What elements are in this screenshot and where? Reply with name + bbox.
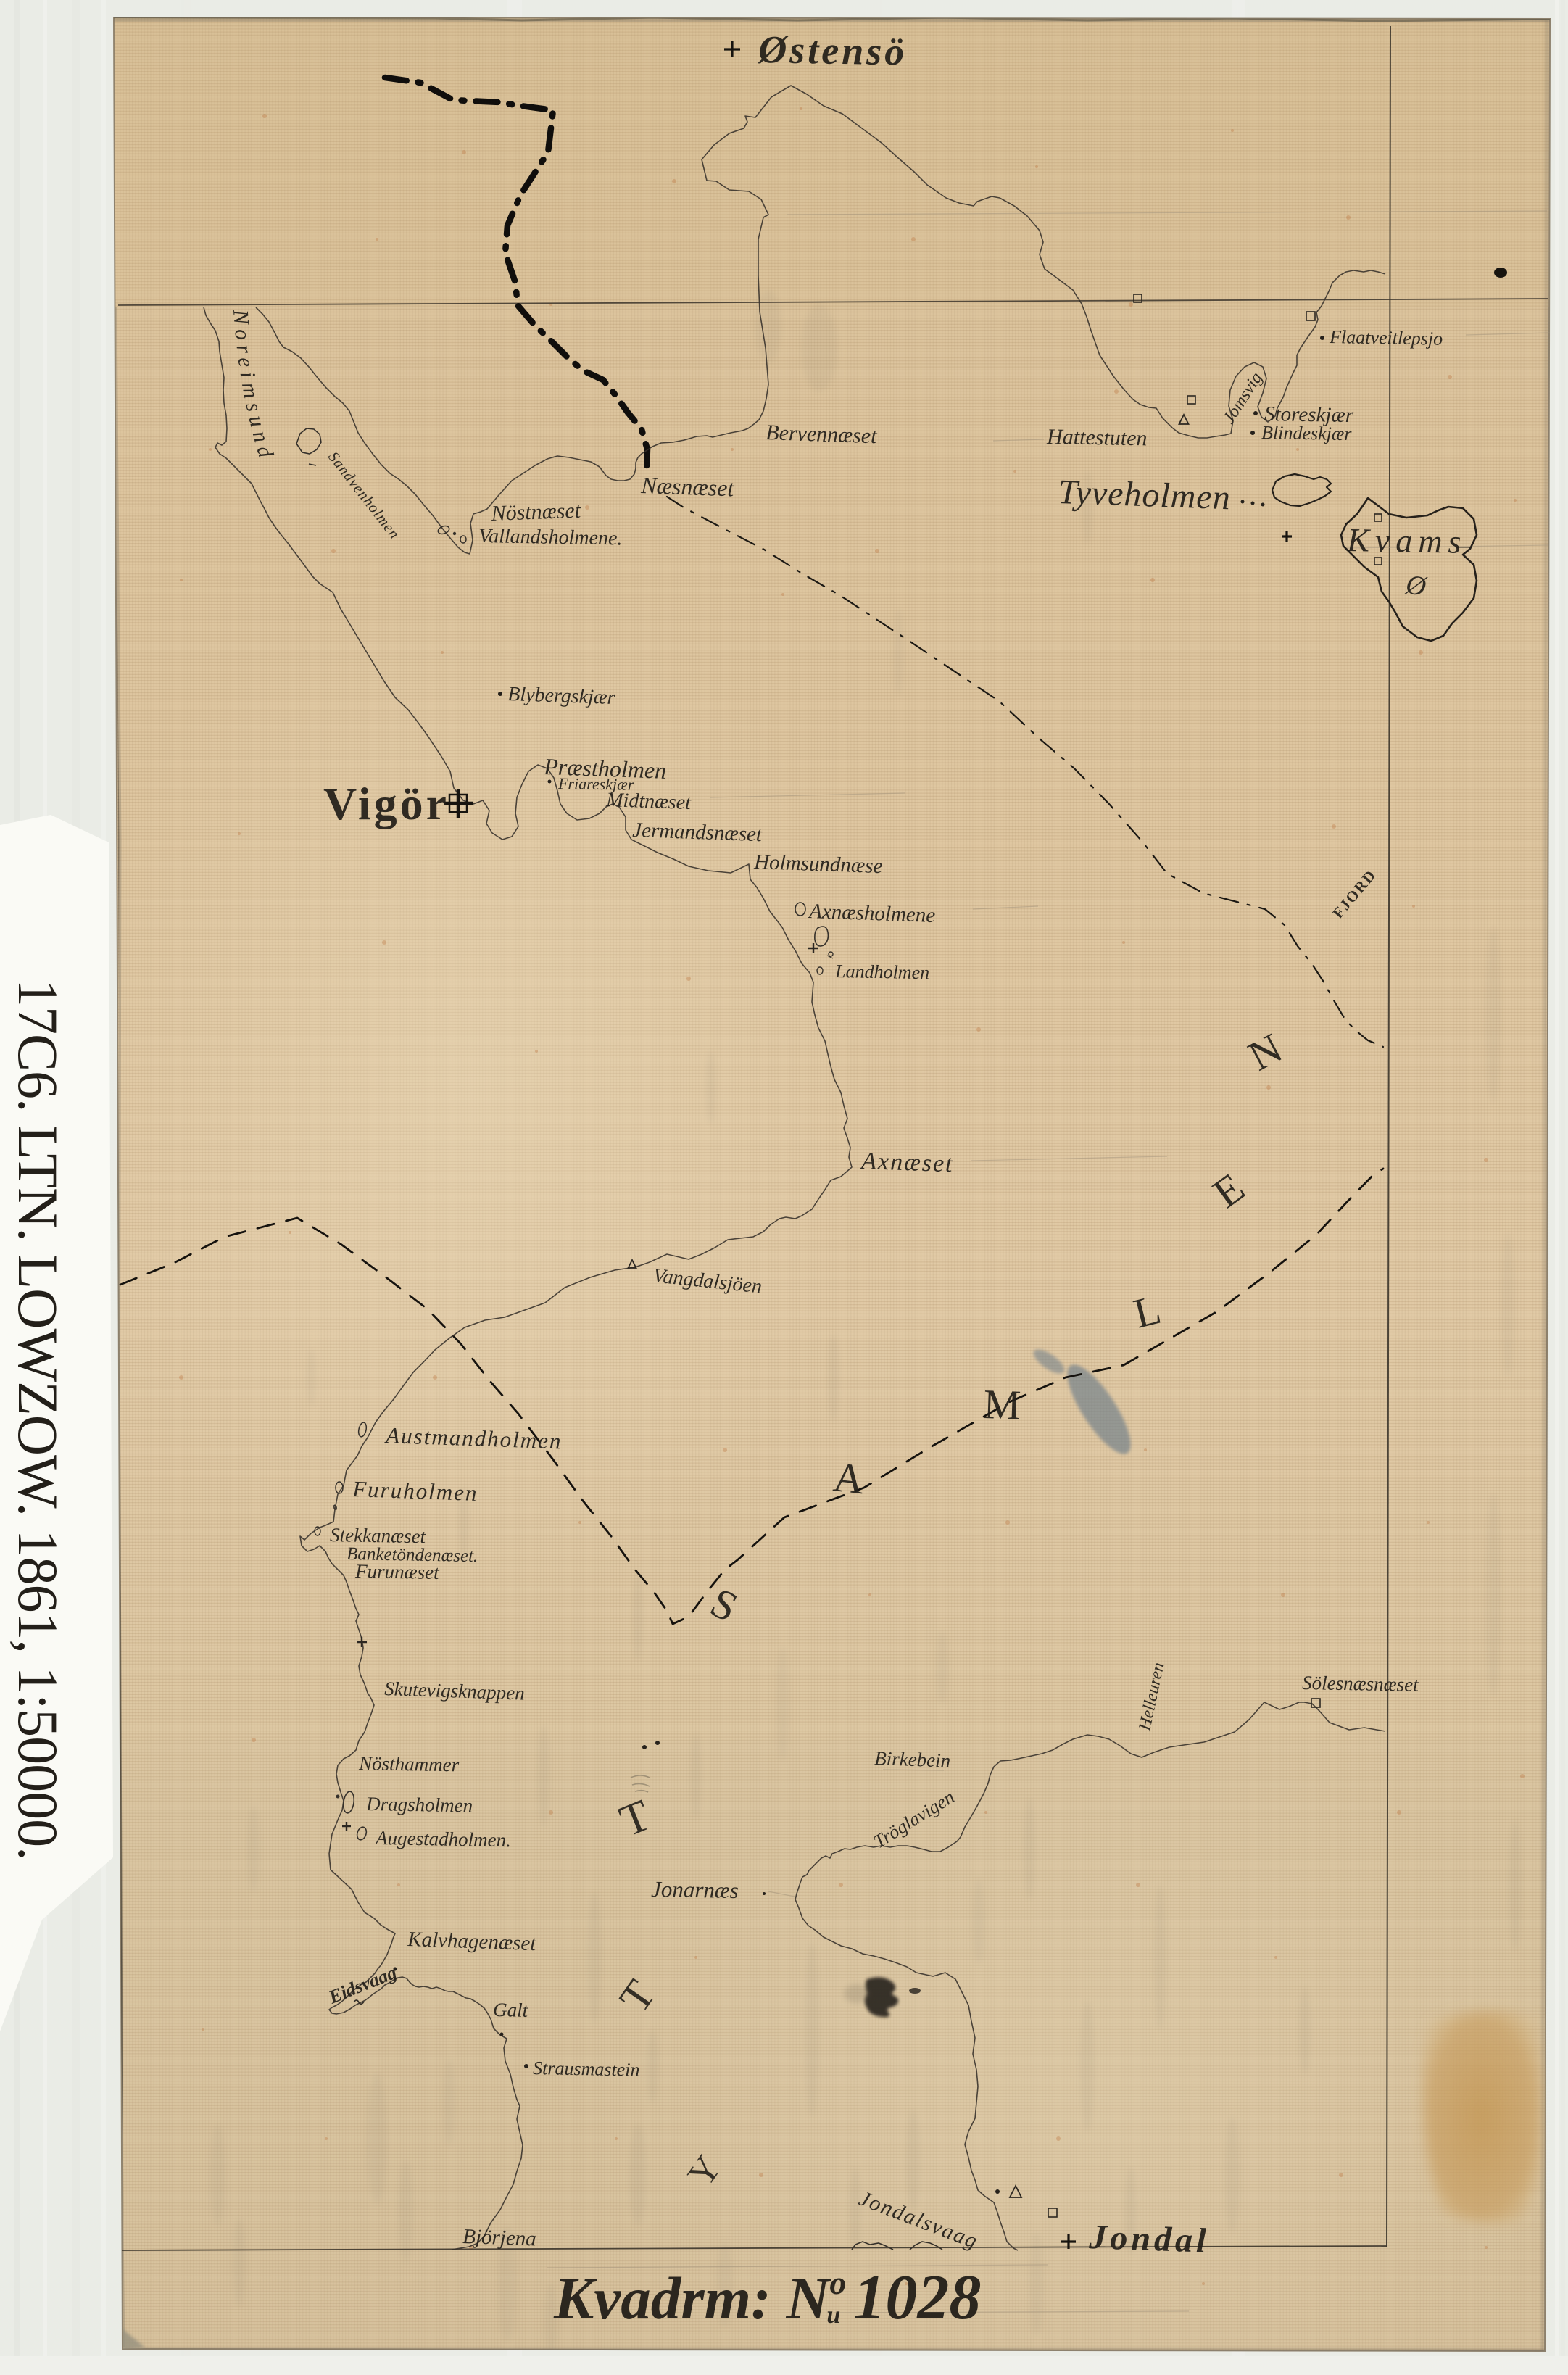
svg-text:Hattestuten: Hattestuten bbox=[1046, 425, 1148, 450]
svg-text:Sölesnæsnæset: Sölesnæsnæset bbox=[1302, 1672, 1420, 1696]
svg-text:Axnæsholmene: Axnæsholmene bbox=[808, 900, 936, 927]
svg-text:Nösthammer: Nösthammer bbox=[358, 1752, 460, 1775]
svg-text:Augestadholmen.: Augestadholmen. bbox=[374, 1827, 511, 1851]
svg-text:Birkebein: Birkebein bbox=[874, 1747, 951, 1772]
svg-text:A: A bbox=[831, 1453, 867, 1503]
svg-text:Dragsholmen: Dragsholmen bbox=[365, 1793, 473, 1817]
svg-text:Kvadrm: Nou1028: Kvadrm: Nou1028 bbox=[553, 2263, 981, 2333]
svg-text:Furuholmen: Furuholmen bbox=[352, 1476, 478, 1506]
svg-text:Næsnæset: Næsnæset bbox=[640, 472, 735, 502]
svg-text:Furunæset: Furunæset bbox=[354, 1560, 441, 1583]
svg-text:Landholmen: Landholmen bbox=[834, 961, 929, 983]
svg-text:Jermandsnæset: Jermandsnæset bbox=[632, 818, 763, 846]
svg-text:Blindeskjær: Blindeskjær bbox=[1261, 422, 1353, 444]
svg-text:Bervennæset: Bervennæset bbox=[766, 420, 878, 448]
svg-text:Björjena: Björjena bbox=[462, 2225, 537, 2251]
svg-text:Nöstnæset: Nöstnæset bbox=[490, 499, 581, 526]
svg-text:Axnæset: Axnæset bbox=[860, 1148, 955, 1177]
svg-text:Kvams: Kvams bbox=[1346, 521, 1467, 560]
svg-text:Kalvhagenæset: Kalvhagenæset bbox=[407, 1928, 537, 1955]
svg-text:Tyveholmen: Tyveholmen bbox=[1058, 473, 1232, 517]
svg-text:Stekkanæset: Stekkanæset bbox=[330, 1524, 427, 1547]
svg-text:Galt: Galt bbox=[493, 1999, 529, 2021]
svg-text:Vigör: Vigör bbox=[323, 778, 449, 829]
svg-text:Vallandsholmene.: Vallandsholmene. bbox=[478, 525, 623, 550]
svg-text:Østensö: Østensö bbox=[757, 28, 908, 74]
svg-text:—: — bbox=[1455, 536, 1470, 555]
svg-text:Jonarnæs: Jonarnæs bbox=[651, 1876, 739, 1903]
svg-text:Jondal: Jondal bbox=[1088, 2218, 1211, 2260]
svg-text:Blybergskjær: Blybergskjær bbox=[507, 683, 615, 709]
svg-text:Flaatveitlepsjo: Flaatveitlepsjo bbox=[1329, 326, 1443, 349]
svg-text:17C6. LTN. LOWZOW. 1861, 1:500: 17C6. LTN. LOWZOW. 1861, 1:50000. bbox=[7, 979, 70, 1860]
svg-text:Strausmastein: Strausmastein bbox=[533, 2057, 640, 2081]
svg-text:M: M bbox=[983, 1380, 1022, 1429]
svg-text:Midtnæset: Midtnæset bbox=[605, 789, 692, 814]
svg-text:Holmsundnæse: Holmsundnæse bbox=[753, 850, 883, 878]
